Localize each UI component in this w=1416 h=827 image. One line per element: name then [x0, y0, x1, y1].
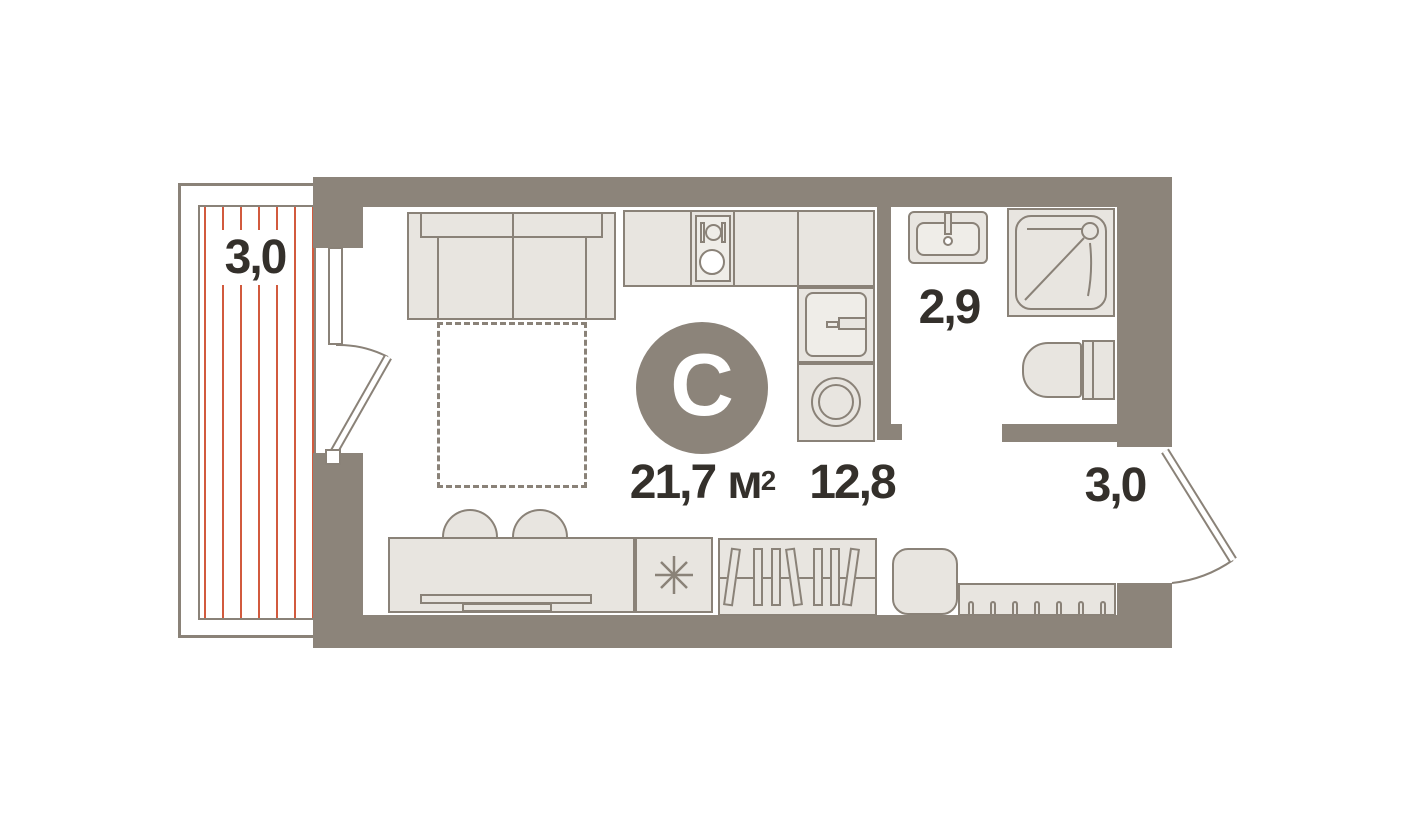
- total-area-sup: 2: [761, 465, 776, 497]
- balcony-door-hinge: [326, 450, 340, 464]
- snowflake-icon: [655, 556, 693, 594]
- shower-door-line: [1088, 243, 1091, 296]
- total-area-label: 21,7 м2: [598, 456, 808, 508]
- total-area-value: 21,7: [630, 455, 715, 510]
- shower-head-icon: [1082, 223, 1098, 239]
- total-area-unit: м: [727, 455, 761, 510]
- floor-plan: С 3,0 21,7 м2 12,8 2,9 3,0: [0, 0, 1416, 827]
- balcony-area-label: 3,0: [203, 234, 307, 280]
- entrance-door-arc: [1172, 560, 1233, 583]
- hallway-area-label: 3,0: [1065, 460, 1165, 510]
- balcony-door-leaf-fill: [334, 357, 388, 452]
- bathroom-area-label: 2,9: [899, 282, 999, 332]
- studio-type-badge: С: [636, 322, 768, 454]
- balcony-door-arc: [336, 345, 388, 357]
- entrance-door-leaf-fill: [1165, 451, 1233, 560]
- kitchen-living-area-label: 12,8: [792, 456, 912, 508]
- shower-diagonal-line: [1025, 238, 1084, 300]
- studio-type-letter: С: [670, 341, 734, 429]
